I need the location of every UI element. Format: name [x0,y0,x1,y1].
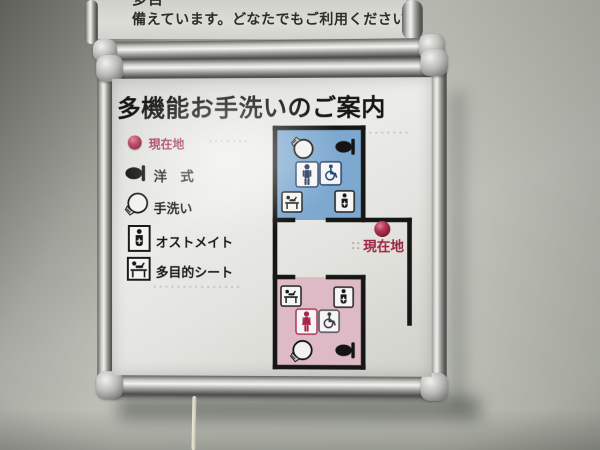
sign-title: 多機能お手洗いのご案内 [117,87,429,123]
upper-sign-panel: 多目 備えています。どなたでもご利用ください。 [92,0,406,39]
current-location-marker [374,221,390,237]
legend-label-current-location: 現在地 [149,135,185,152]
hand-wash-basin-icon [125,191,150,217]
main-sign: 多機能お手洗いのご案内 現在地 洋 式 手洗い オストメイト [96,51,448,403]
map-current-location-label: 現在地 [363,238,404,255]
legend-label-ostomate: オストメイト [156,232,234,251]
braille-dots [152,284,239,291]
upper-sign-frame-right [402,0,423,40]
legend-label-multipurpose-sheet: 多目的シート [156,262,234,281]
multipurpose-sheet-icon-frame [281,286,301,306]
sign-panel: 多機能お手洗いのご案内 現在地 洋 式 手洗い オストメイト [112,77,432,377]
braille-dots [352,242,359,249]
floor-map: 現在地 [257,119,418,376]
western-toilet-icon [122,164,150,182]
legend-label-western-toilet: 洋 式 [154,165,194,185]
upper-sign-frame-left [85,0,98,44]
current-location-dot-icon [128,135,142,149]
main-corner-cap-bottom-left [96,371,123,399]
legend-label-hand-wash: 手洗い [154,198,193,217]
main-frame-right [430,59,447,395]
main-frame-left [97,65,113,393]
main-corner-cap-bottom-right [421,373,448,401]
multipurpose-sheet-icon-frame [282,192,302,212]
main-frame-bottom [104,375,440,399]
sign-shadow-right [449,92,466,407]
ostomate-icon [128,225,151,252]
multipurpose-sheet-icon [127,257,151,281]
braille-dots [207,138,249,145]
main-corner-cap-top-right [421,49,448,76]
upper-sign-text-partial: 多目 [132,0,164,9]
upper-sign-text: 備えています。どなたでもご利用ください。 [132,9,406,29]
